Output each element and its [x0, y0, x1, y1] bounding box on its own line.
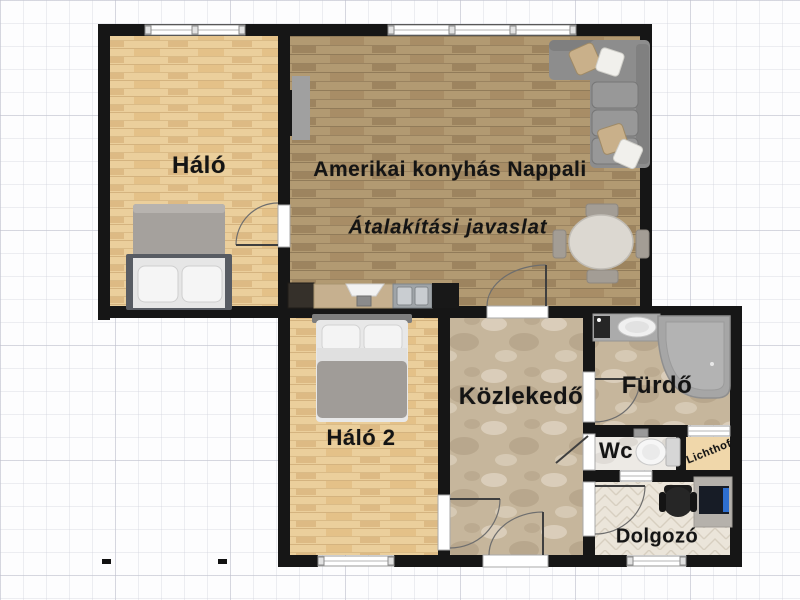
window-halo2-bottom: [318, 556, 394, 566]
kitchen-counter: [288, 283, 459, 308]
wall-bottom-1: [278, 555, 318, 567]
renovation-note: Átalakítási javaslat: [349, 217, 548, 240]
wall-outer-right: [730, 306, 742, 567]
wall-kozlekedo-right-4: [583, 536, 595, 555]
window-dolgozo-bottom: [627, 556, 686, 566]
wall-lower-left: [278, 306, 290, 567]
halo2-label: Háló 2: [326, 425, 395, 451]
double-bed-halo2: [312, 314, 412, 422]
furdo-label: Fürdő: [622, 372, 692, 400]
wall-bottom-2: [394, 555, 483, 567]
dolgozo-label: Dolgozó: [616, 526, 698, 549]
wall-halo2-kozlekedo-upper: [438, 306, 450, 495]
wall-bottom-3: [548, 555, 627, 567]
window-lichthof: [688, 426, 730, 436]
dimension-ticks: [102, 559, 227, 564]
desk: [694, 477, 732, 527]
wall-left: [98, 24, 110, 320]
floor-plan-drawing: [0, 0, 800, 600]
window-nappali-top: [388, 25, 576, 35]
wall-bottom-4: [686, 555, 742, 567]
kozlekedo-floor: [450, 318, 583, 555]
window-halo-top: [145, 25, 245, 35]
nappali-label: Amerikai konyhás Nappali: [313, 158, 586, 182]
wall-halo2-kozlekedo-lower: [438, 550, 450, 555]
wc-label: Wc: [599, 438, 633, 464]
kitchen-sink: [393, 284, 432, 308]
halo-label: Háló: [172, 152, 226, 180]
washing-machine: [594, 316, 610, 338]
floor-plan: Háló Amerikai konyhás Nappali Átalakítás…: [0, 0, 800, 600]
bathroom-vanity: [593, 314, 660, 341]
double-bed-halo: [126, 204, 232, 310]
window-wc-transom: [620, 471, 652, 481]
kozlekedo-label: Közlekedő: [459, 383, 584, 411]
wall-wc-bottom-left: [583, 470, 620, 482]
